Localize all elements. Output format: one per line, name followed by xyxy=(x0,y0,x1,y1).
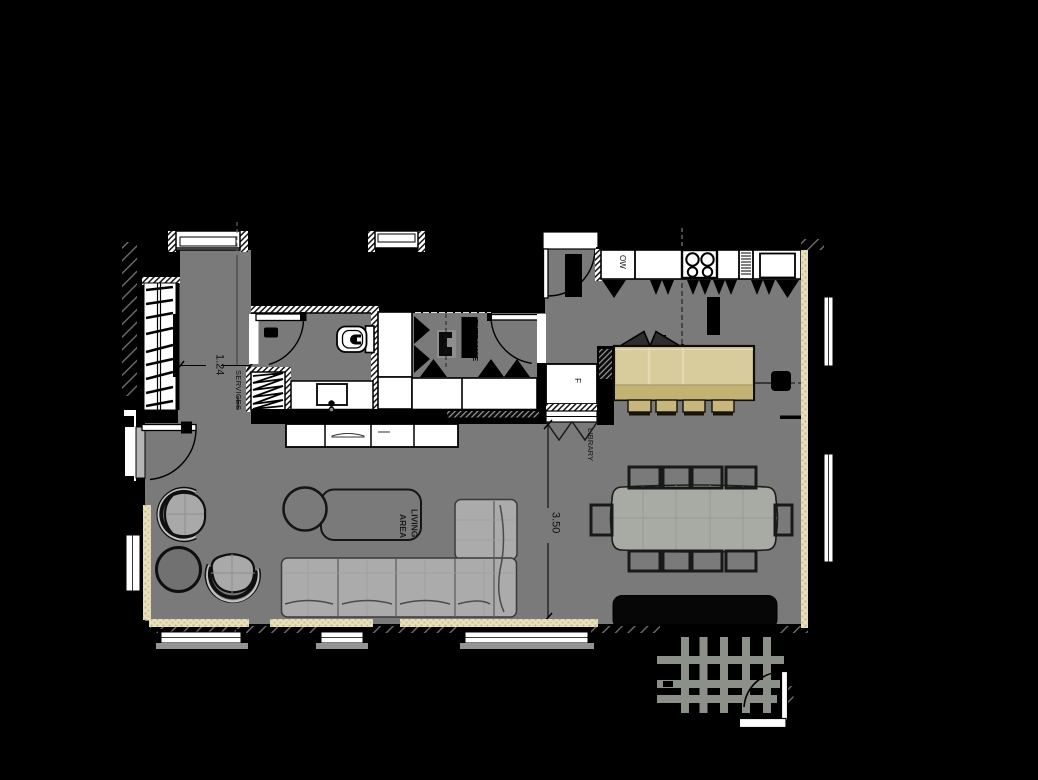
svg-text:AREA: AREA xyxy=(398,514,408,538)
svg-text:3.50: 3.50 xyxy=(550,512,562,533)
svg-text:LIVING: LIVING xyxy=(410,509,420,538)
svg-text:F: F xyxy=(573,378,583,383)
svg-text:ENTRANCE: ENTRANCE xyxy=(471,319,480,361)
svg-text:LIBRARY: LIBRARY xyxy=(586,428,595,461)
svg-text:1.24: 1.24 xyxy=(214,354,226,375)
svg-text:OW: OW xyxy=(618,255,627,269)
